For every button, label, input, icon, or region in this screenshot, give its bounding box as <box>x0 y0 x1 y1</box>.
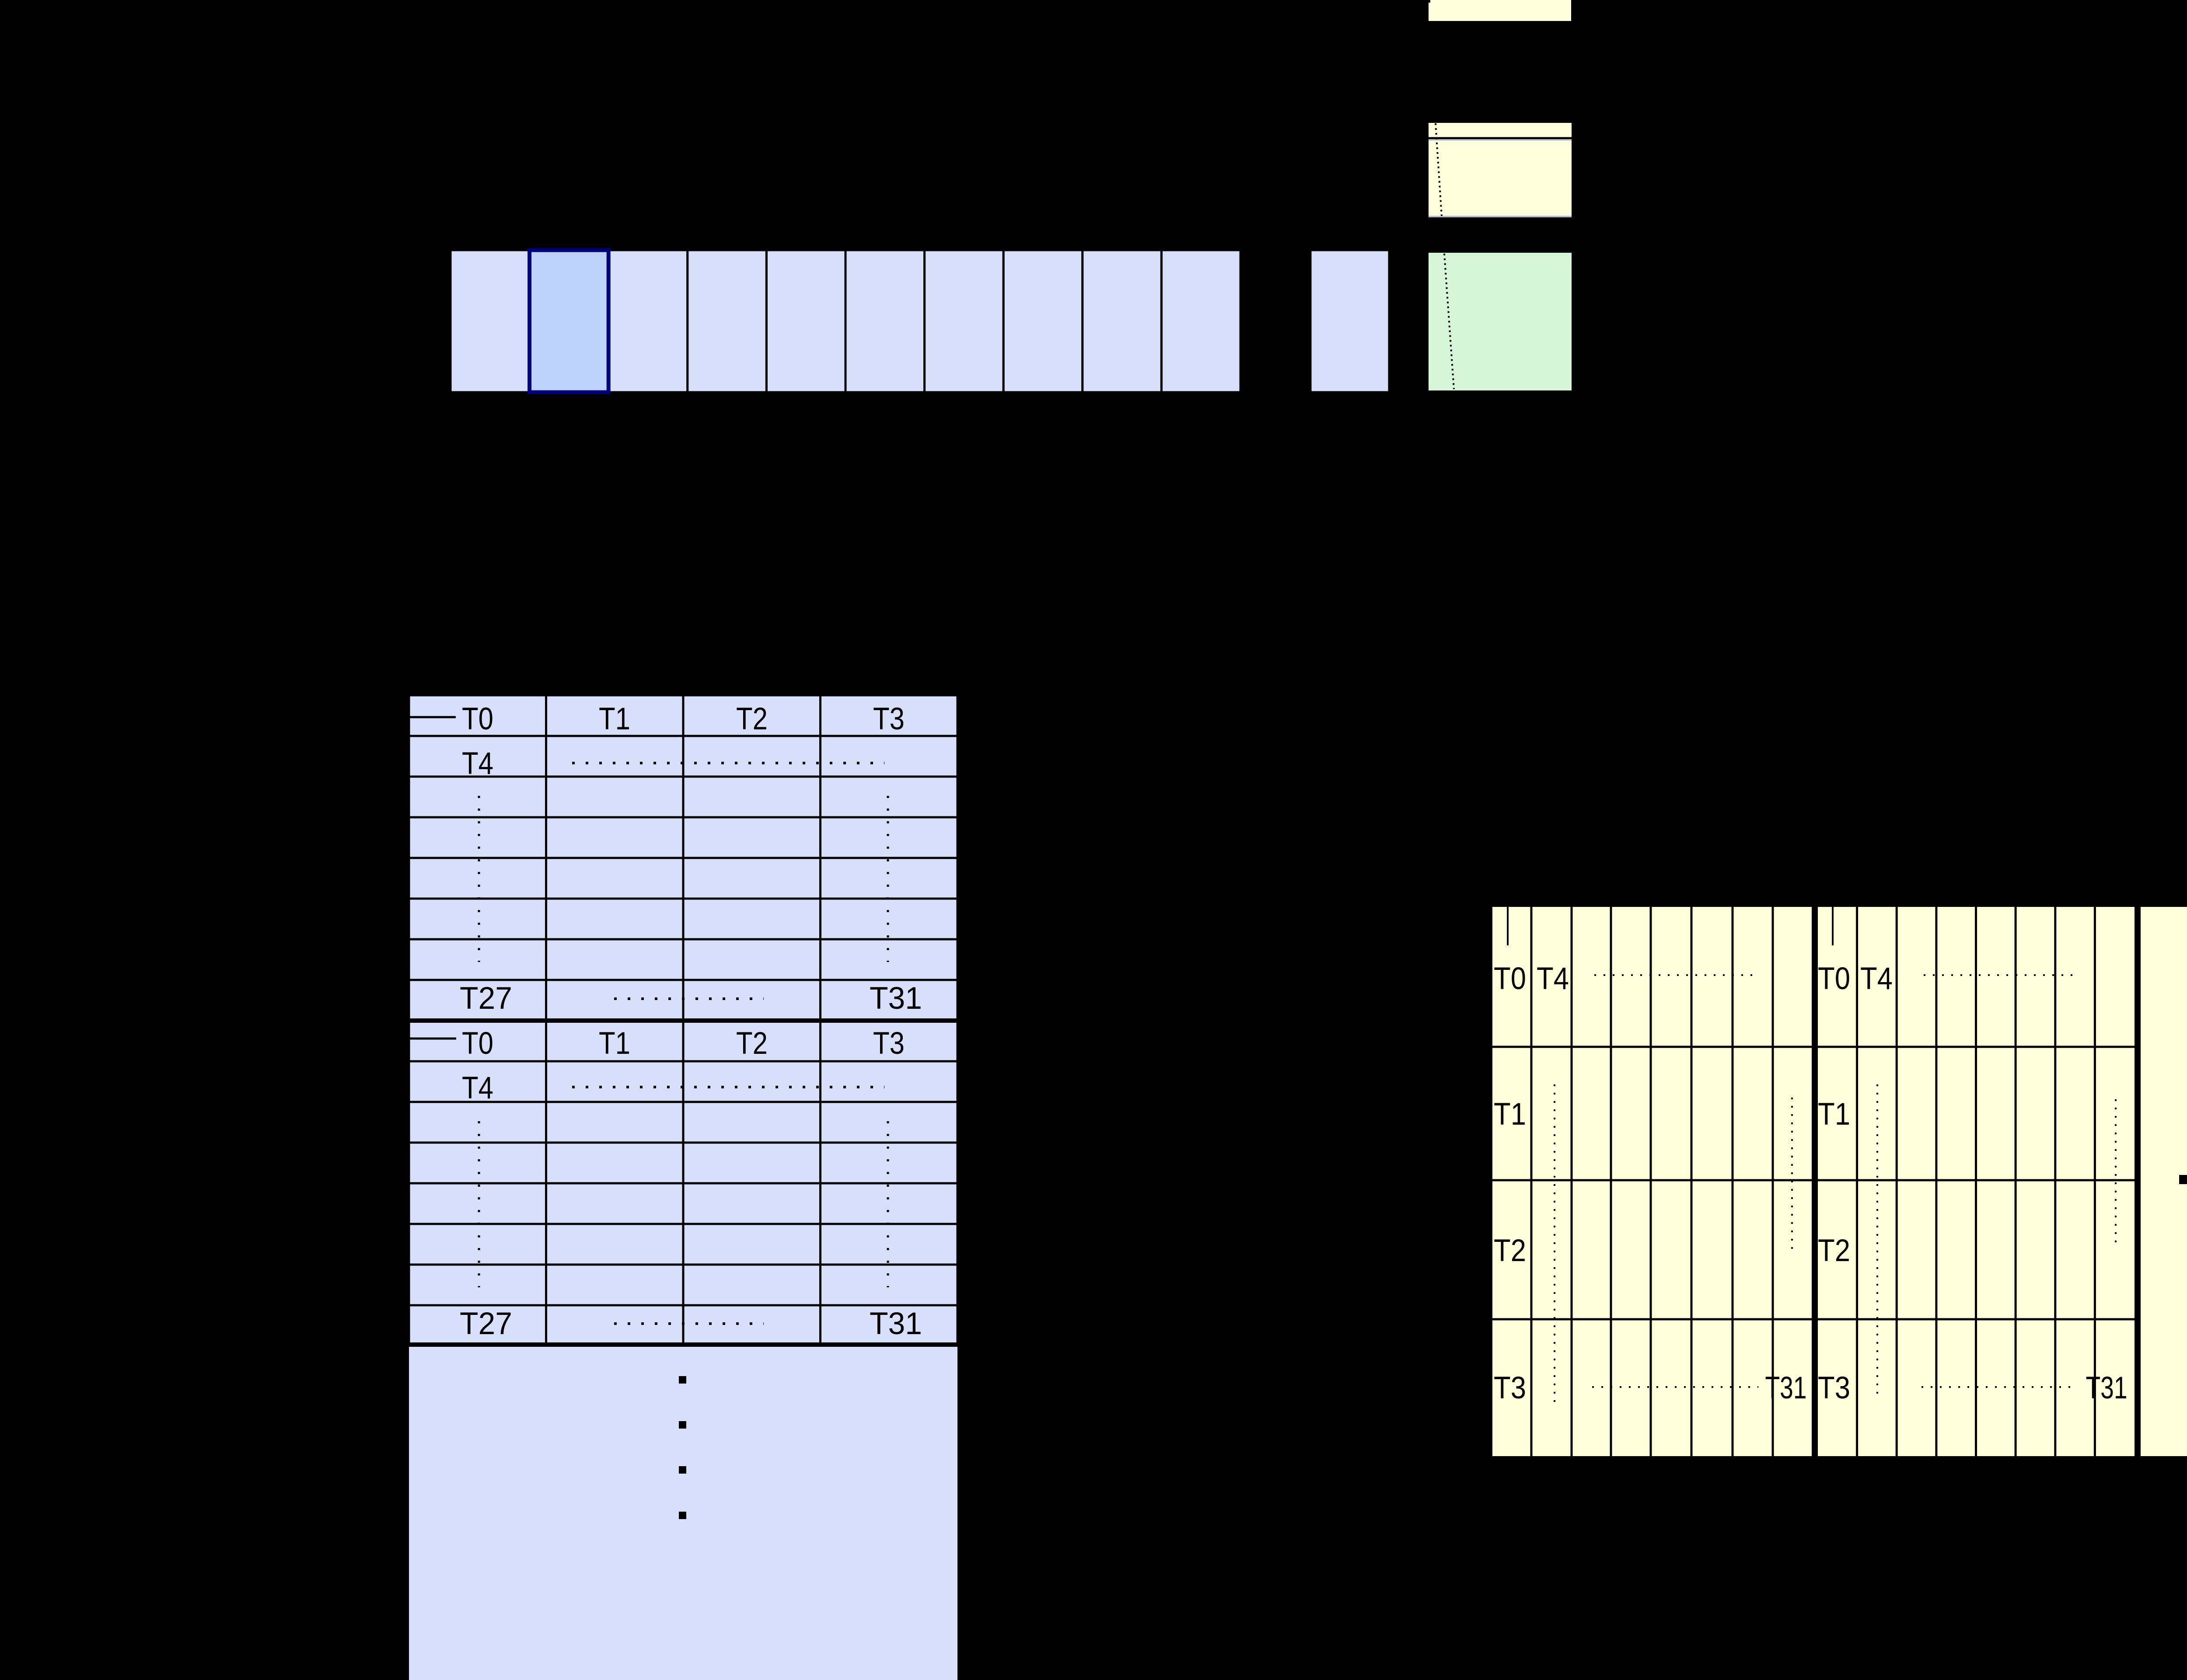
svg-text:T4: T4 <box>1537 962 1569 996</box>
svg-text:T31: T31 <box>1765 1371 1807 1405</box>
svg-text:T0: T0 <box>462 1026 493 1061</box>
svg-text:T3: T3 <box>1494 1371 1526 1405</box>
svg-text:T1: T1 <box>1818 1097 1850 1132</box>
svg-text:T4: T4 <box>1860 962 1893 996</box>
svg-text:T2: T2 <box>1494 1234 1526 1268</box>
svg-text:T3: T3 <box>873 1026 905 1061</box>
svg-text:T0: T0 <box>1494 962 1526 996</box>
svg-text:T31: T31 <box>870 1307 922 1341</box>
svg-text:T0: T0 <box>1818 962 1850 996</box>
svg-text:T4: T4 <box>462 1071 493 1105</box>
svg-text:T27: T27 <box>460 1307 512 1341</box>
svg-text:T27: T27 <box>460 981 512 1016</box>
svg-text:T2: T2 <box>736 702 768 736</box>
svg-text:T2: T2 <box>736 1026 768 1061</box>
svg-text:T4: T4 <box>462 746 493 781</box>
svg-text:T3: T3 <box>1818 1371 1850 1405</box>
svg-text:T0: T0 <box>462 702 493 736</box>
svg-text:T1: T1 <box>599 1026 630 1061</box>
svg-text:T31: T31 <box>870 981 922 1016</box>
svg-text:T31: T31 <box>2086 1371 2128 1405</box>
svg-text:T1: T1 <box>599 702 630 736</box>
svg-text:T3: T3 <box>873 702 905 736</box>
svg-text:T1: T1 <box>1494 1097 1526 1132</box>
svg-text:T2: T2 <box>1818 1234 1850 1268</box>
